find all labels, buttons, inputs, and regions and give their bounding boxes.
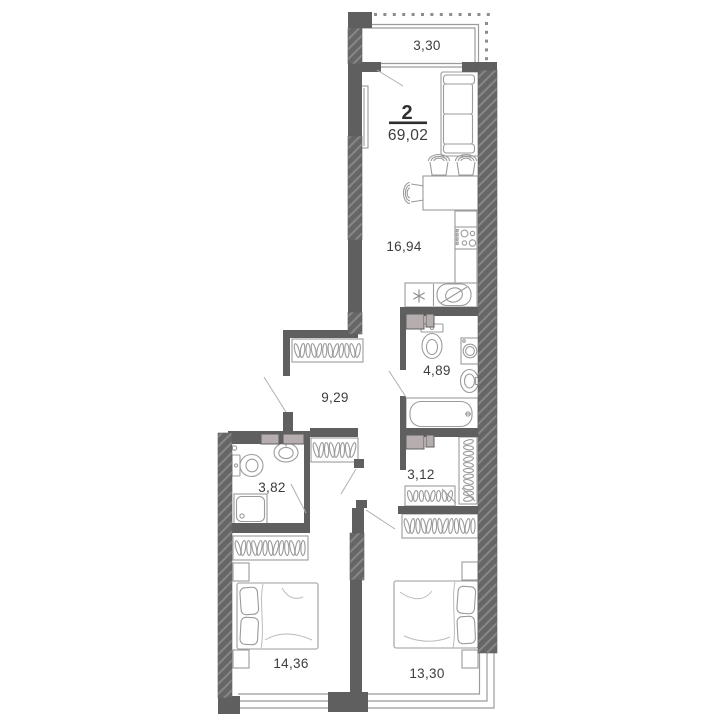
toilet-room-door-swing [291, 484, 306, 513]
chair-icon [429, 155, 450, 176]
bed [237, 583, 318, 649]
nook-wardrobe [311, 438, 358, 462]
nightstand [462, 562, 478, 580]
bedroom-2-door-swing [366, 510, 395, 529]
total-area-label: 69,02 [388, 127, 428, 144]
dining-table [404, 155, 479, 211]
nightstand [233, 650, 249, 668]
shower [234, 494, 267, 524]
chair-icon [404, 183, 425, 204]
room-area-label-bedroom-1: 14,36 [273, 656, 308, 671]
bedroom-1-door-swing [341, 469, 356, 494]
bedroom-1-wardrobe [233, 536, 308, 560]
chair-icon [456, 155, 477, 176]
balcony-dotted-outline [374, 13, 490, 60]
apartment-header: 2 69,02 [388, 102, 428, 144]
corner-kitchen-sink [437, 284, 471, 306]
room-area-label-toilet: 3,82 [258, 480, 285, 495]
bedroom-1-window [238, 694, 328, 708]
room-area-label-bedroom-2: 13,30 [409, 666, 444, 681]
rooms-count-label: 2 [401, 102, 412, 124]
room-area-label-hallway: 9,29 [321, 390, 348, 405]
toilet [232, 455, 263, 477]
pipe-outlet [232, 446, 236, 450]
nightstand [233, 563, 249, 581]
sofa [441, 72, 481, 156]
nightstand [462, 650, 478, 668]
header-divider [389, 122, 427, 125]
room-area-label-kitchen: 16,94 [386, 239, 421, 254]
washing-machine [461, 338, 479, 364]
floor-plan-canvas: 2 69,02 3,30 16,94 4,89 9,29 3,82 3,12 1… [0, 0, 720, 720]
bedroom-2-wardrobe [402, 514, 478, 538]
bathtub [406, 398, 478, 430]
entrance-door-swing [264, 377, 286, 412]
closet-hanger-vertical [459, 437, 477, 504]
bathroom-sink [461, 370, 480, 393]
stove [455, 227, 477, 249]
room-area-label-closet: 3,12 [407, 467, 434, 482]
closet-hanger-bottom [405, 486, 456, 506]
hallway-wardrobe [292, 339, 363, 362]
room-area-label-bathroom: 4,89 [423, 363, 450, 378]
room-area-label-balcony: 3,30 [413, 38, 440, 53]
floor-plan: 2 69,02 3,30 16,94 4,89 9,29 3,82 3,12 1… [0, 0, 720, 720]
bed [394, 581, 478, 648]
bathroom-door-swing [389, 371, 406, 397]
balcony-door-swing [377, 70, 403, 86]
washbasin [274, 443, 298, 462]
